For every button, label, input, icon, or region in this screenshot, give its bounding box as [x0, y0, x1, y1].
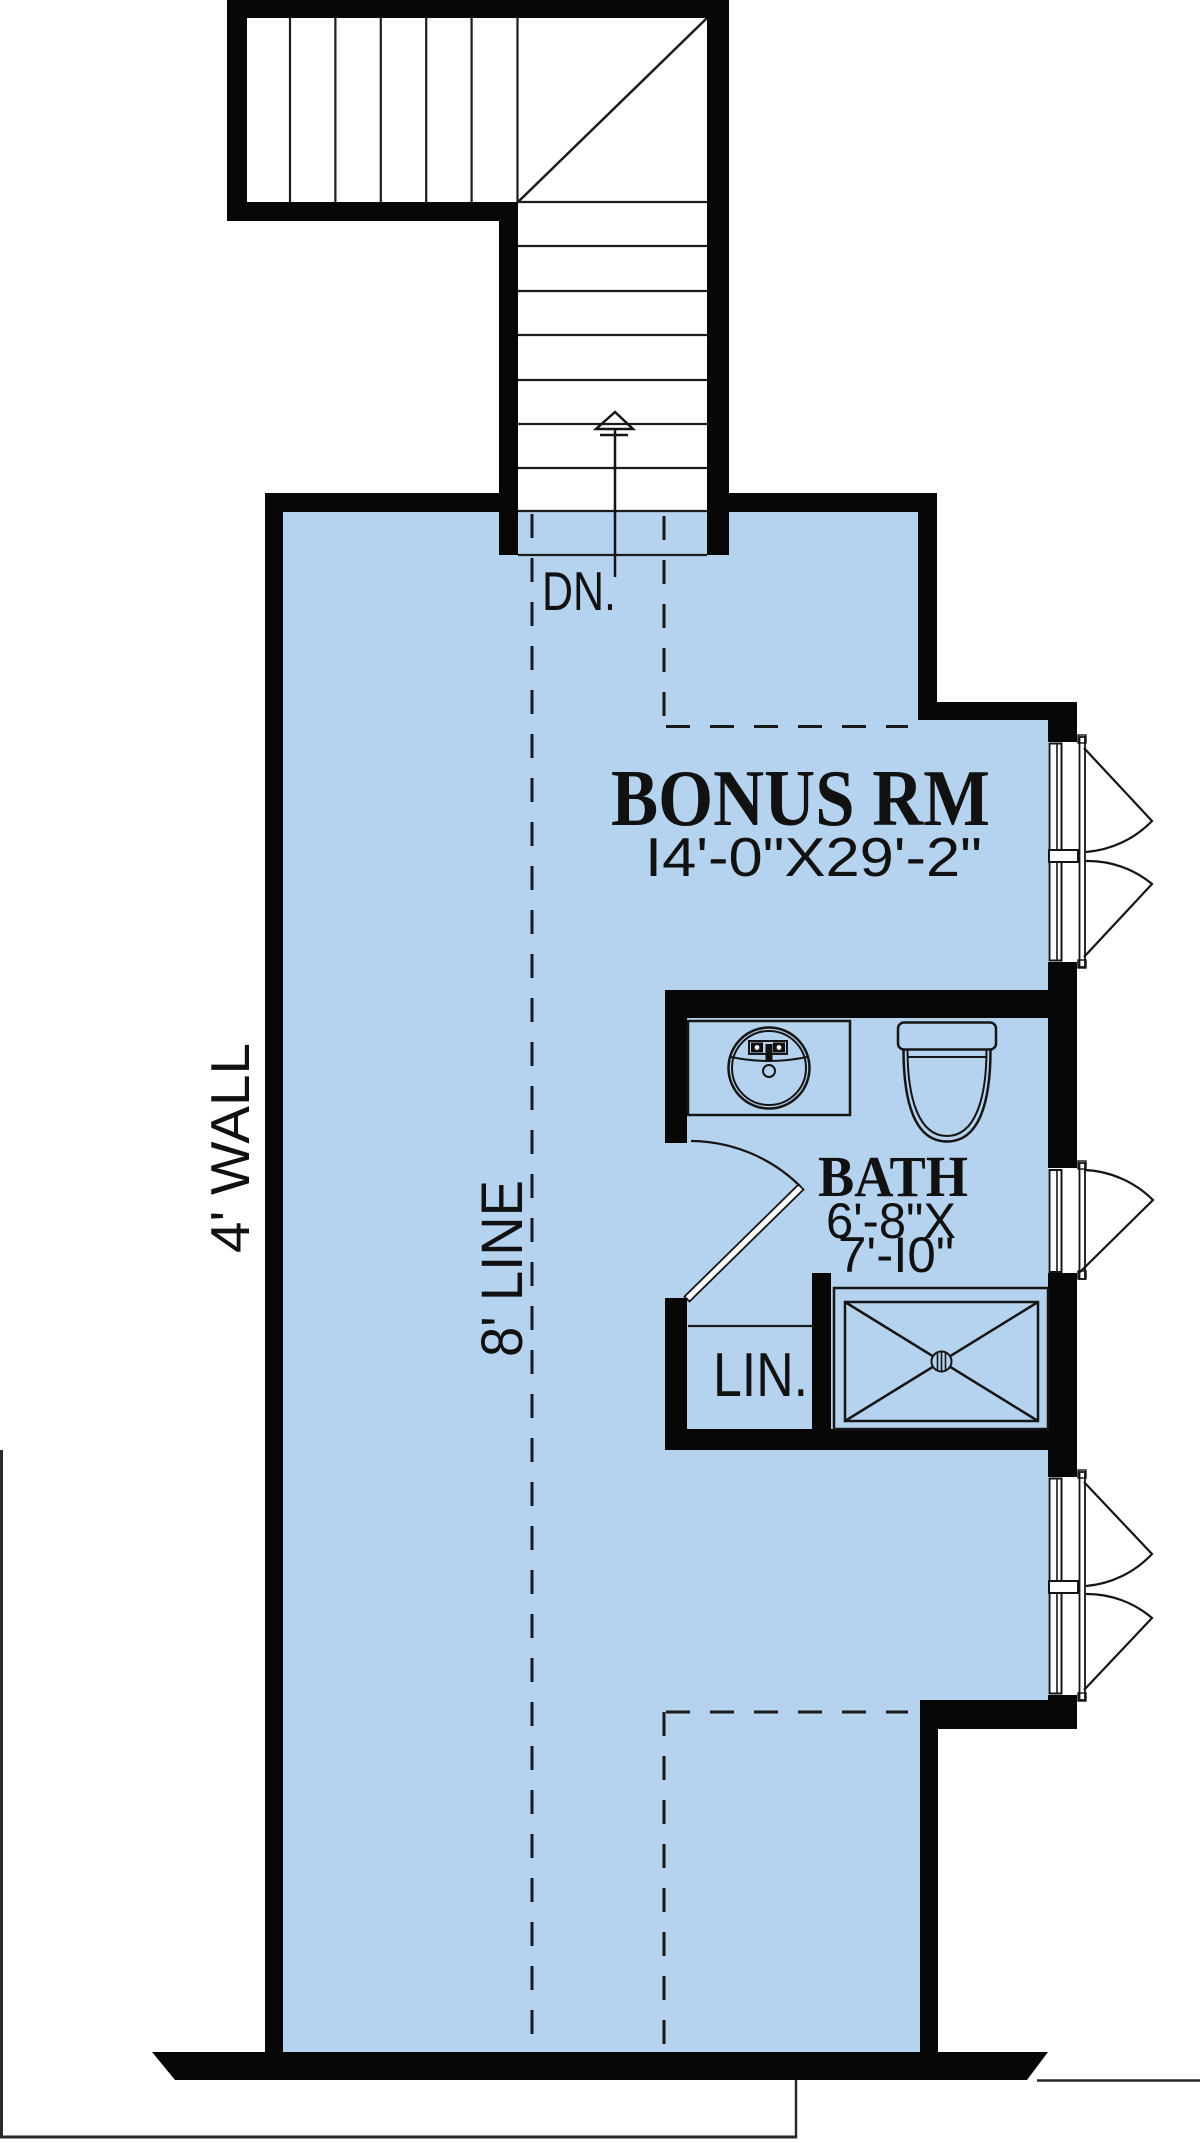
svg-text:I4'-0"X29'-2": I4'-0"X29'-2"	[645, 826, 982, 888]
svg-text:7'-I0": 7'-I0"	[838, 1227, 954, 1283]
svg-text:8' LINE: 8' LINE	[470, 1180, 535, 1357]
svg-text:LIN.: LIN.	[713, 1341, 808, 1410]
svg-text:4' WALL: 4' WALL	[199, 1043, 261, 1253]
svg-text:DN.: DN.	[542, 560, 616, 622]
